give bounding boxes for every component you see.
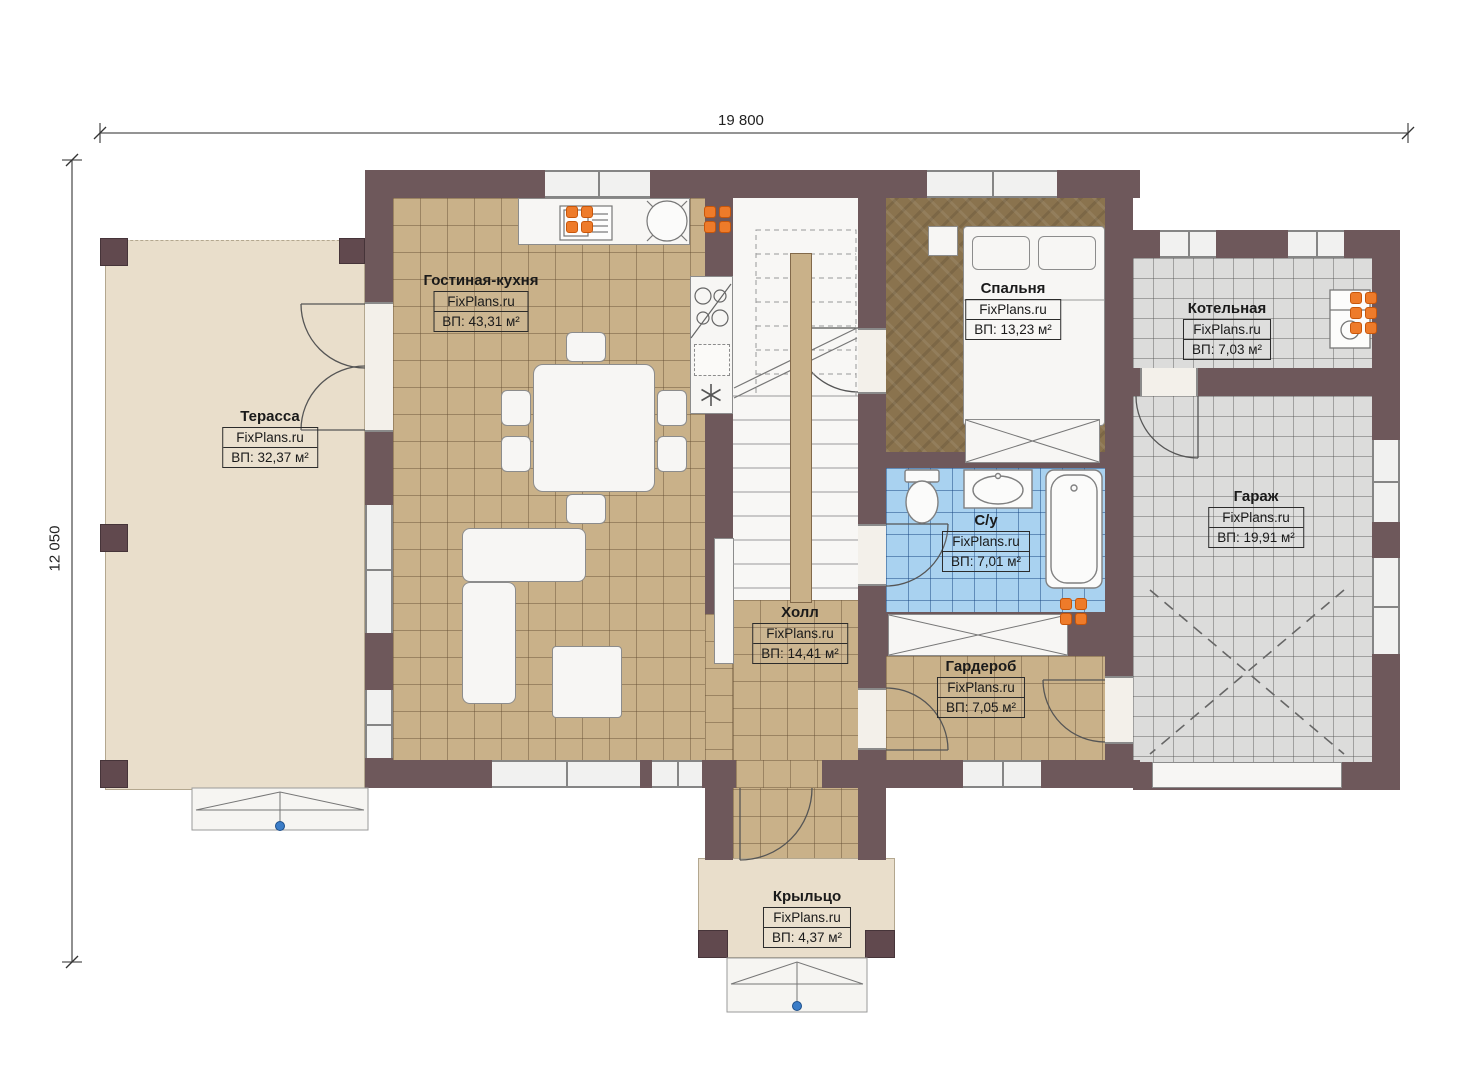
stair-stringer-wall bbox=[790, 253, 812, 603]
radiator-icon bbox=[1060, 598, 1087, 625]
closet-hallside bbox=[888, 614, 1068, 656]
brand-watermark: FixPlans.ru bbox=[943, 532, 1029, 551]
room-label-garage: Гараж FixPlans.ru ВП: 19,91 м² bbox=[1208, 488, 1304, 548]
brand-watermark: FixPlans.ru bbox=[434, 292, 528, 311]
room-info-box: FixPlans.ru ВП: 7,01 м² bbox=[942, 531, 1030, 572]
room-name: Гостиная-кухня bbox=[424, 272, 539, 289]
nightstand bbox=[928, 226, 958, 256]
room-name: Котельная bbox=[1183, 300, 1271, 317]
porch-post bbox=[865, 930, 895, 958]
door-opening-bathroom bbox=[858, 524, 886, 586]
room-info-box: FixPlans.ru ВП: 4,37 м² bbox=[763, 907, 851, 948]
room-area: ВП: 19,91 м² bbox=[1209, 527, 1303, 547]
room-area: ВП: 4,37 м² bbox=[764, 927, 850, 947]
room-info-box: FixPlans.ru ВП: 13,23 м² bbox=[965, 299, 1061, 340]
window-living-bottom-1 bbox=[492, 760, 640, 788]
chair bbox=[501, 436, 531, 472]
room-area: ВП: 7,03 м² bbox=[1184, 339, 1270, 359]
room-terrace-floor bbox=[105, 240, 365, 790]
window-kitchen-top bbox=[545, 170, 650, 198]
chair bbox=[566, 332, 606, 362]
sofa-seat bbox=[462, 582, 516, 704]
chair bbox=[501, 390, 531, 426]
door-opening-porch bbox=[736, 760, 822, 788]
radiator-icon bbox=[1350, 292, 1377, 334]
step-marker-dot bbox=[276, 822, 285, 831]
sofa-back bbox=[462, 528, 586, 582]
room-info-box: FixPlans.ru ВП: 32,37 м² bbox=[222, 427, 318, 468]
room-label-boiler: Котельная FixPlans.ru ВП: 7,03 м² bbox=[1183, 300, 1271, 360]
wall-wing-top bbox=[1105, 230, 1400, 258]
terrace-post bbox=[100, 238, 128, 266]
room-info-box: FixPlans.ru ВП: 43,31 м² bbox=[433, 291, 529, 332]
tv-cabinet bbox=[714, 538, 734, 664]
dishwasher bbox=[694, 344, 730, 376]
room-label-porch: Крыльцо FixPlans.ru ВП: 4,37 м² bbox=[763, 888, 851, 948]
room-area: ВП: 7,05 м² bbox=[938, 697, 1024, 717]
terrace-post bbox=[100, 760, 128, 788]
room-area: ВП: 13,23 м² bbox=[966, 319, 1060, 339]
window-garage-right-1 bbox=[1372, 440, 1400, 522]
window-living-bottom-2 bbox=[652, 760, 702, 788]
porch-steps bbox=[727, 958, 867, 1012]
room-info-box: FixPlans.ru ВП: 7,05 м² bbox=[937, 677, 1025, 718]
room-info-box: FixPlans.ru ВП: 7,03 м² bbox=[1183, 319, 1271, 360]
door-opening-wardrobe-garage bbox=[1105, 676, 1133, 744]
window-boiler-top-1 bbox=[1160, 230, 1216, 258]
room-name: Терасса bbox=[222, 408, 318, 425]
brand-watermark: FixPlans.ru bbox=[1209, 508, 1303, 527]
door-opening-terrace bbox=[365, 302, 393, 432]
room-area: ВП: 32,37 м² bbox=[223, 447, 317, 467]
room-info-box: FixPlans.ru ВП: 19,91 м² bbox=[1208, 507, 1304, 548]
terrace-post bbox=[339, 238, 365, 264]
window-garage-right-2 bbox=[1372, 558, 1400, 654]
radiator-icon bbox=[566, 206, 593, 233]
kitchen-counter bbox=[518, 198, 690, 245]
terrace-post bbox=[100, 524, 128, 552]
chair bbox=[657, 390, 687, 426]
room-label-terrace: Терасса FixPlans.ru ВП: 32,37 м² bbox=[222, 408, 318, 468]
dining-table bbox=[533, 364, 655, 492]
door-opening-bedroom bbox=[858, 328, 886, 394]
door-opening-wardrobe bbox=[858, 688, 886, 750]
room-info-box: FixPlans.ru ВП: 14,41 м² bbox=[752, 623, 848, 664]
window-bedroom-top bbox=[927, 170, 1057, 198]
brand-watermark: FixPlans.ru bbox=[753, 624, 847, 643]
brand-watermark: FixPlans.ru bbox=[1184, 320, 1270, 339]
window-boiler-top-2 bbox=[1288, 230, 1344, 258]
floor-plan: 19 800 12 050 bbox=[0, 0, 1474, 1080]
chair bbox=[566, 494, 606, 524]
closet-bedroom bbox=[965, 419, 1100, 463]
dimension-height-label: 12 050 bbox=[46, 526, 63, 572]
window-living-left-2 bbox=[365, 690, 393, 758]
room-area: ВП: 43,31 м² bbox=[434, 311, 528, 331]
window-wardrobe-bottom bbox=[963, 760, 1041, 788]
room-garage-floor bbox=[1133, 396, 1372, 762]
room-label-bedroom: Спальня FixPlans.ru ВП: 13,23 м² bbox=[965, 280, 1061, 340]
brand-watermark: FixPlans.ru bbox=[966, 300, 1060, 319]
garage-door bbox=[1152, 762, 1342, 788]
dimension-width-label: 19 800 bbox=[718, 112, 764, 129]
step-marker-dot bbox=[793, 1002, 802, 1011]
wall-porch-left bbox=[705, 788, 733, 860]
room-name: Холл bbox=[752, 604, 848, 621]
coffee-table bbox=[552, 646, 622, 718]
room-name: С/у bbox=[942, 512, 1030, 529]
room-label-wardrobe: Гардероб FixPlans.ru ВП: 7,05 м² bbox=[937, 658, 1025, 718]
room-label-hall: Холл FixPlans.ru ВП: 14,41 м² bbox=[752, 604, 848, 664]
pillow bbox=[1038, 236, 1096, 270]
brand-watermark: FixPlans.ru bbox=[764, 908, 850, 927]
door-opening-boiler-garage bbox=[1140, 368, 1198, 396]
room-name: Крыльцо bbox=[763, 888, 851, 905]
room-area: ВП: 14,41 м² bbox=[753, 643, 847, 663]
window-living-left-1 bbox=[365, 505, 393, 633]
brand-watermark: FixPlans.ru bbox=[223, 428, 317, 447]
brand-watermark: FixPlans.ru bbox=[938, 678, 1024, 697]
pillow bbox=[972, 236, 1030, 270]
radiator-icon bbox=[704, 206, 731, 233]
porch-post bbox=[698, 930, 728, 958]
room-label-living: Гостиная-кухня FixPlans.ru ВП: 43,31 м² bbox=[424, 272, 539, 332]
chair bbox=[657, 436, 687, 472]
room-label-bathroom: С/у FixPlans.ru ВП: 7,01 м² bbox=[942, 512, 1030, 572]
room-name: Спальня bbox=[965, 280, 1061, 297]
dimension-line-left bbox=[62, 154, 82, 968]
room-name: Гардероб bbox=[937, 658, 1025, 675]
room-area: ВП: 7,01 м² bbox=[943, 551, 1029, 571]
room-name: Гараж bbox=[1208, 488, 1304, 505]
wall-porch-right bbox=[858, 788, 886, 860]
terrace-steps bbox=[192, 788, 368, 831]
